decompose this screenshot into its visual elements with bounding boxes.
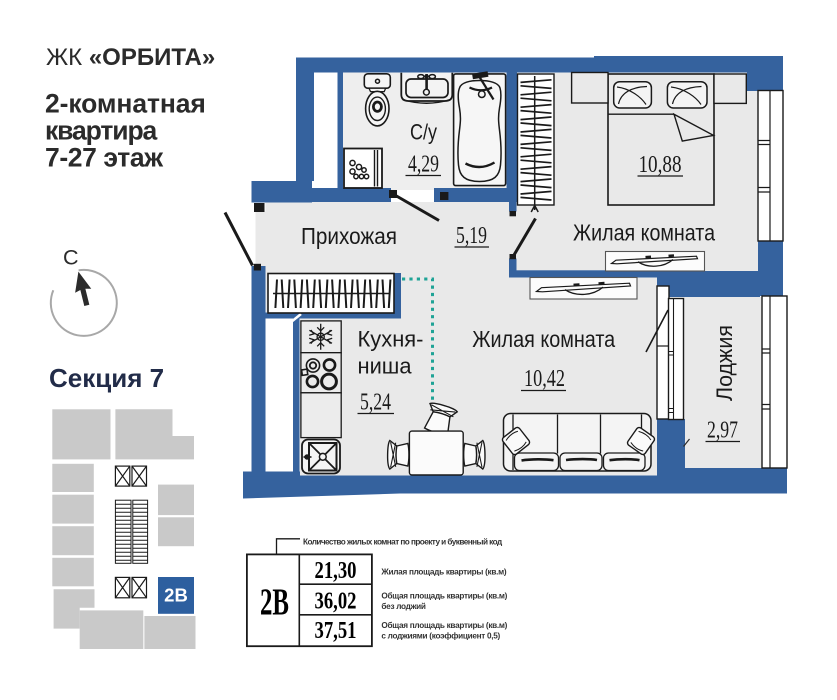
svg-text:с лоджиями (коэффициент 0,5): с лоджиями (коэффициент 0,5) [381,632,500,641]
svg-text:36,02: 36,02 [315,588,357,615]
svg-text:Общая площадь квартиры (кв.м): Общая площадь квартиры (кв.м) [381,591,507,601]
svg-text:Общая площадь квартиры (кв.м): Общая площадь квартиры (кв.м) [381,620,507,630]
svg-text:Жилая комната: Жилая комната [472,326,615,352]
svg-text:С: С [63,246,79,270]
svg-text:4,29: 4,29 [408,152,439,178]
svg-text:Лоджия: Лоджия [712,325,737,401]
svg-text:Жилая комната: Жилая комната [573,220,715,246]
svg-text:2В: 2В [164,585,188,606]
svg-text:21,30: 21,30 [315,557,357,584]
svg-text:7-27 этаж: 7-27 этаж [45,143,164,173]
svg-text:ниша: ниша [358,354,413,379]
svg-text:Прихожая: Прихожая [301,223,397,249]
svg-text:10,88: 10,88 [639,152,682,178]
svg-text:2,97: 2,97 [707,418,738,444]
svg-text:5,19: 5,19 [456,223,487,249]
svg-text:С/у: С/у [410,120,437,145]
svg-text:квартира: квартира [45,116,158,146]
svg-text:без лоджий: без лоджий [381,601,425,611]
svg-text:Секция 7: Секция 7 [49,363,164,393]
svg-text:2-комнатная: 2-комнатная [45,89,206,119]
svg-text:2В: 2В [260,582,289,624]
svg-text:Количество жилых комнат по про: Количество жилых комнат по проекту и бук… [303,537,503,547]
svg-text:Кухня-: Кухня- [358,327,424,352]
svg-text:10,42: 10,42 [524,366,565,392]
svg-text:ЖК «ОРБИТА»: ЖК «ОРБИТА» [46,44,215,71]
svg-text:37,51: 37,51 [315,617,357,644]
svg-text:Жилая площадь квартиры (кв.м): Жилая площадь квартиры (кв.м) [380,568,506,577]
svg-text:5,24: 5,24 [360,390,391,416]
